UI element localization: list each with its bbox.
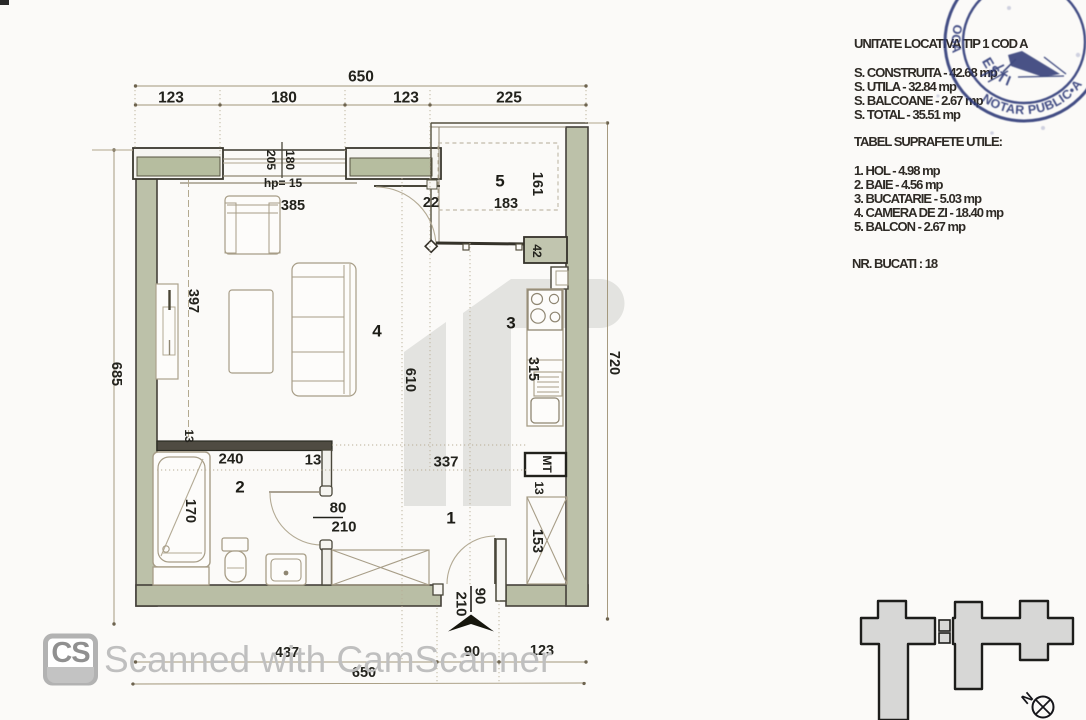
- svg-text:42: 42: [530, 244, 544, 258]
- svg-text:MT: MT: [540, 455, 554, 473]
- svg-text:337: 337: [433, 454, 458, 471]
- svg-text:685: 685: [108, 362, 124, 386]
- svg-text:225: 225: [496, 90, 522, 107]
- svg-text:80: 80: [330, 500, 347, 517]
- svg-text:3. BUCATARIE - 5.03 mp: 3. BUCATARIE - 5.03 mp: [854, 191, 982, 206]
- svg-text:S. TOTAL - 35.51 mp: S. TOTAL - 35.51 mp: [854, 107, 961, 122]
- svg-text:240: 240: [218, 451, 243, 468]
- svg-text:Scanned with CamScanner: Scanned with CamScanner: [104, 639, 552, 680]
- svg-text:210: 210: [331, 519, 356, 536]
- svg-text:CS: CS: [51, 637, 90, 669]
- svg-text:397: 397: [185, 289, 201, 313]
- svg-text:4. CAMERA DE ZI - 18.40 mp: 4. CAMERA DE ZI - 18.40 mp: [854, 205, 1004, 220]
- svg-text:610: 610: [402, 368, 418, 392]
- svg-text:5: 5: [495, 172, 504, 191]
- svg-text:TABEL SUPRAFETE UTILE:: TABEL SUPRAFETE UTILE:: [854, 134, 1003, 149]
- svg-text:161: 161: [529, 172, 545, 196]
- svg-text:13: 13: [305, 452, 322, 469]
- svg-text:13: 13: [182, 429, 196, 443]
- svg-text:385: 385: [281, 198, 305, 214]
- svg-text:170: 170: [182, 499, 198, 523]
- svg-text:90: 90: [472, 588, 489, 605]
- svg-text:180: 180: [271, 90, 297, 107]
- svg-text:UNITATE LOCATIVA TIP 1 COD A: UNITATE LOCATIVA TIP 1 COD A: [854, 36, 1029, 51]
- svg-text:2. BAIE - 4.56 mp: 2. BAIE - 4.56 mp: [854, 177, 944, 192]
- svg-text:1. HOL - 4.98 mp: 1. HOL - 4.98 mp: [854, 163, 941, 178]
- svg-text:315: 315: [525, 357, 541, 381]
- svg-text:205: 205: [264, 150, 278, 170]
- svg-text:S. UTILA - 32.84 mp: S. UTILA - 32.84 mp: [854, 79, 957, 94]
- svg-text:1: 1: [446, 509, 455, 528]
- svg-text:123: 123: [393, 90, 419, 107]
- svg-text:hp= 15: hp= 15: [264, 176, 303, 190]
- svg-text:5. BALCON - 2.67 mp: 5. BALCON - 2.67 mp: [854, 219, 966, 234]
- svg-text:3: 3: [506, 314, 515, 333]
- svg-text:22: 22: [423, 195, 439, 211]
- svg-text:S. CONSTRUITA - 42.68 mp: S. CONSTRUITA - 42.68 mp: [854, 65, 998, 80]
- svg-text:13: 13: [532, 481, 546, 495]
- svg-text:NR. BUCATI : 18: NR. BUCATI : 18: [852, 256, 938, 271]
- svg-text:180: 180: [283, 150, 297, 170]
- svg-text:4: 4: [372, 322, 382, 341]
- svg-text:720: 720: [606, 351, 622, 375]
- svg-text:210: 210: [453, 591, 470, 616]
- svg-text:183: 183: [494, 196, 518, 212]
- svg-text:650: 650: [348, 69, 374, 86]
- svg-text:2: 2: [235, 478, 244, 497]
- svg-text:153: 153: [529, 529, 545, 553]
- svg-text:123: 123: [158, 90, 184, 107]
